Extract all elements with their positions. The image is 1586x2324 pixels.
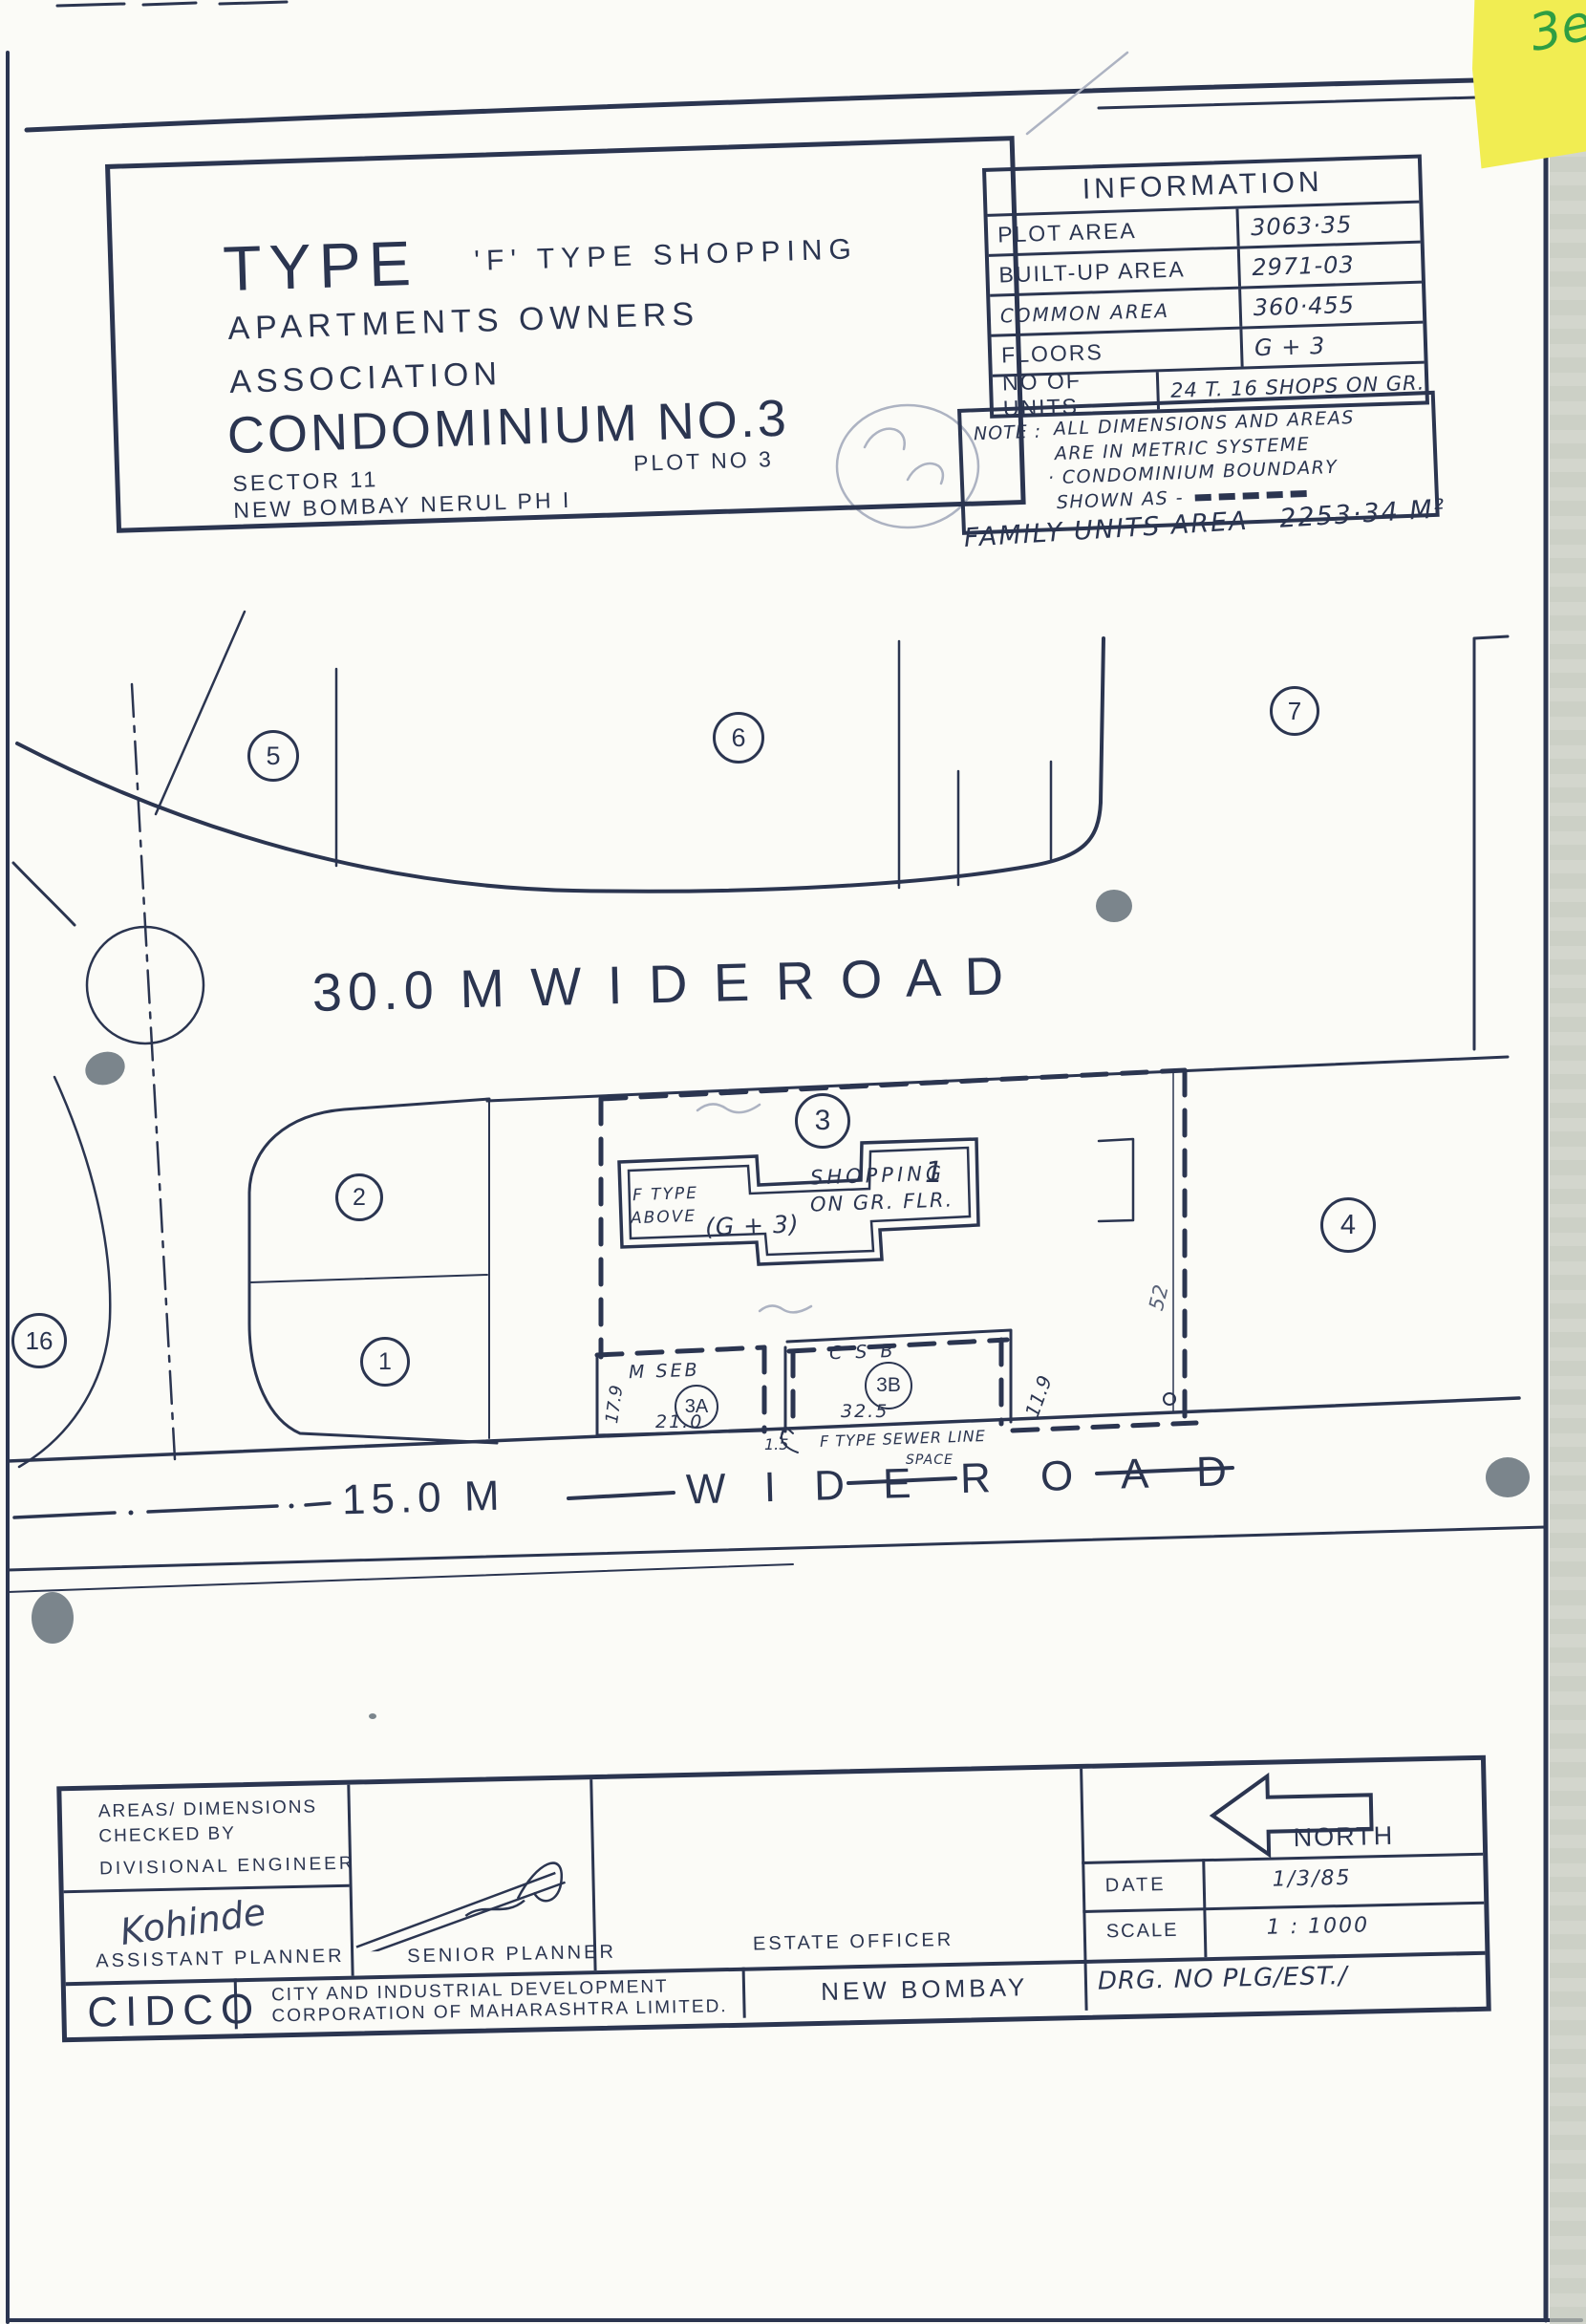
estate-officer-label: ESTATE OFFICER (753, 1929, 954, 1956)
road15-south-edge-2 (8, 1564, 793, 1592)
divider (1080, 1769, 1088, 2011)
info-label: PLOT AREA (988, 215, 1237, 248)
sewer-space-label: SPACE (906, 1452, 954, 1468)
building-label-ftype: F TYPE (632, 1184, 699, 1205)
title-line3: ASSOCIATION (229, 355, 503, 401)
scale-value: 1 : 1000 (1267, 1913, 1370, 1939)
divider (742, 1968, 746, 2018)
road-15m-label-width: 15.0 M (341, 1473, 505, 1525)
boundary-structure (1099, 1139, 1133, 1221)
gap-dim: 1.5 (764, 1435, 788, 1453)
csb-label: C S B (829, 1341, 897, 1364)
drawing-title-box: TYPE 'F' TYPE SHOPPING APARTMENTS OWNERS… (105, 136, 1026, 533)
info-title: INFORMATION (1082, 166, 1323, 206)
building-label-above: ABOVE (631, 1207, 697, 1228)
boundary-dash-sample (1194, 494, 1211, 502)
divisional-engineer-label: DIVISIONAL ENGINEER (99, 1854, 355, 1881)
info-value: 2971-03 (1237, 244, 1422, 287)
note-line1: ALL DIMENSIONS AND AREAS (1053, 407, 1355, 440)
title-block: AREAS/ DIMENSIONS CHECKED BY DIVISIONAL … (56, 1755, 1490, 2043)
right-plot-boundary (1474, 636, 1508, 1049)
road-centerline (132, 684, 175, 1459)
checked-by-line1: AREAS/ DIMENSIONS (98, 1797, 318, 1822)
mseb-width-dim: 21.0 (655, 1411, 703, 1432)
divider (1082, 1902, 1484, 1913)
boundary-dash-sample (1290, 490, 1306, 498)
divider (64, 1884, 350, 1894)
plot-number-5: 5 (247, 730, 299, 782)
building-unit-number: 1 (925, 1156, 943, 1190)
scanned-site-plan-document: TYPE 'F' TYPE SHOPPING APARTMENTS OWNERS… (0, 0, 1586, 2324)
plot-number-7: 7 (1270, 686, 1319, 736)
sheet-top-border (27, 80, 1476, 130)
sticky-note-handwriting: 3e (1524, 0, 1586, 63)
office-location: NEW BOMBAY (821, 1972, 1029, 2007)
info-value: G + 3 (1239, 324, 1424, 367)
information-table: INFORMATION PLOT AREA 3063·35 BUILT-UP A… (982, 155, 1429, 419)
plot-number-16: 16 (11, 1313, 67, 1368)
road-15m-label-wide: W I D E (685, 1460, 925, 1515)
road-15m-label-road: R O A D (959, 1448, 1246, 1503)
centerline-dot (289, 1504, 294, 1509)
centerline-dot (129, 1511, 134, 1516)
plot-number-1: 1 (360, 1337, 410, 1387)
road15-centerline-left (14, 1503, 330, 1517)
plot3-north-line (487, 1057, 1508, 1101)
sector-label: SECTOR 11 (232, 466, 378, 497)
scale-label: SCALE (1106, 1920, 1179, 1944)
boundary-dash-sample (1218, 493, 1234, 501)
building-label-g3: (G + 3) (705, 1210, 801, 1240)
plot-number-2: 2 (335, 1173, 383, 1221)
road15-south-edge (8, 1527, 1546, 1570)
info-label: FLOORS (992, 335, 1241, 369)
mseb-label: M SEB (629, 1360, 700, 1384)
left-small-curve (13, 863, 75, 925)
cidco-logo-text: CIDCO (87, 1986, 262, 2037)
note-label: NOTE : (974, 421, 1042, 445)
road-north-curve (17, 638, 1104, 892)
info-value: 360·455 (1238, 284, 1423, 327)
info-value: 3063·35 (1235, 204, 1420, 247)
plot12-outline (249, 1099, 497, 1443)
boundary-dash-sample (1266, 491, 1282, 499)
north-label: NORTH (1293, 1821, 1394, 1853)
type-subtitle: 'F' TYPE SHOPPING (474, 233, 859, 278)
plot12-divider (250, 1275, 487, 1282)
assistant-planner-signature: Kohinde (118, 1891, 268, 1954)
drawing-number: DRG. NO PLG/EST./ (1098, 1962, 1348, 1996)
plot6-7-dividers (899, 641, 1051, 888)
type-title: TYPE (222, 226, 419, 305)
assistant-planner-label: ASSISTANT PLANNER (96, 1946, 345, 1973)
senior-planner-label: SENIOR PLANNER (407, 1942, 616, 1969)
plot-number-6: 6 (713, 712, 764, 764)
top-edge-marks (57, 2, 287, 6)
plot5-diagonal (156, 612, 245, 814)
date-label: DATE (1105, 1874, 1167, 1897)
checked-by-line2: CHECKED BY (98, 1823, 236, 1847)
sheet-top-border-2 (1099, 97, 1476, 108)
plot16-curve (19, 1077, 110, 1467)
scan-edge-band (1550, 0, 1586, 2324)
csb-width-dim: 32.5 (841, 1401, 889, 1422)
sticky-note: 3e (1472, 0, 1586, 172)
senior-planner-signature (349, 1822, 590, 1951)
plot-no-label: PLOT NO 3 (633, 446, 775, 477)
date-value: 1/3/85 (1272, 1866, 1351, 1892)
plot-number-3: 3 (795, 1093, 850, 1149)
scan-blobs (32, 890, 1530, 1719)
boundary-dash-sample (1242, 492, 1258, 500)
title-line2: APARTMENTS OWNERS (227, 296, 700, 348)
info-label: COMMON AREA (990, 296, 1239, 327)
plot-number-4: 4 (1320, 1197, 1376, 1253)
info-label: BUILT-UP AREA (989, 255, 1238, 289)
